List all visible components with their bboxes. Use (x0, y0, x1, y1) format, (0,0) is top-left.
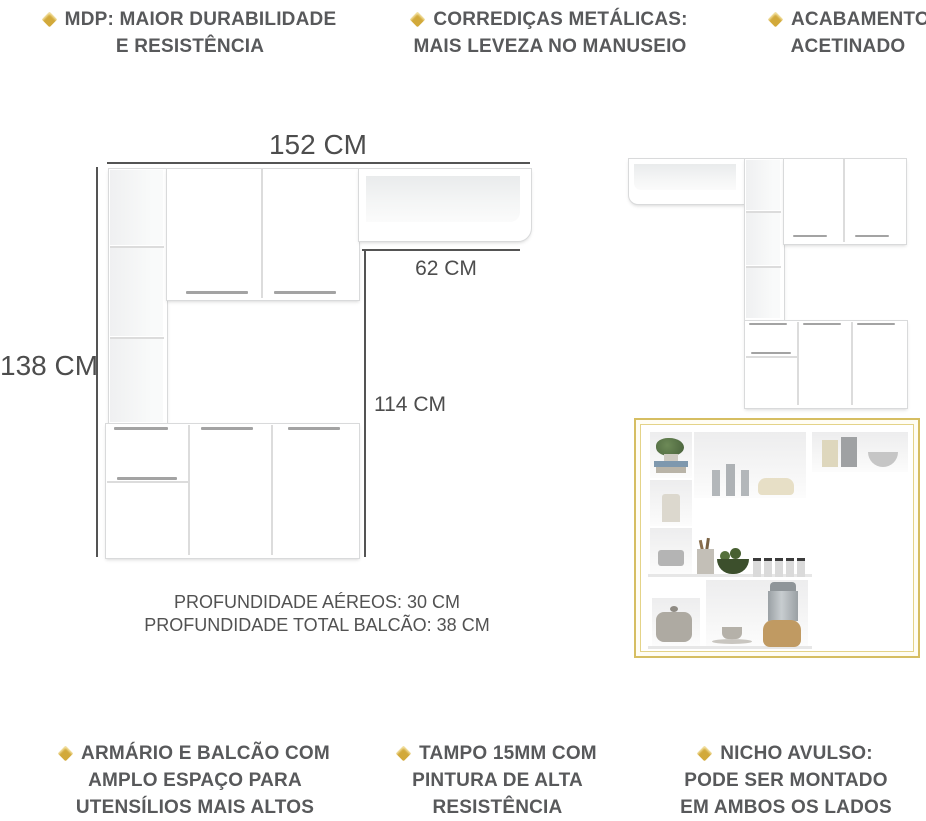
spice-jar-icon (797, 558, 805, 577)
canister-icon (841, 437, 857, 467)
shelf-column-niche (746, 213, 780, 265)
product-infographic: MDP: MAIOR DURABILIDADE E RESISTÊNCIA CO… (0, 0, 926, 821)
feature-nicho-line2: PODE SER MONTADO (655, 767, 917, 794)
feature-armario-line1: ARMÁRIO E BALCÃO COM (81, 743, 330, 764)
cup-icon (722, 627, 742, 639)
dim-label-counter-height: 114 CM (374, 393, 446, 417)
feature-tampo-line1: TAMPO 15MM COM (419, 743, 597, 764)
depth-note-balcao: PROFUNDIDADE TOTAL BALCÃO: 38 CM (117, 614, 517, 637)
fruit-icon (730, 548, 741, 559)
diamond-bullet-icon (58, 746, 74, 762)
feature-tampo-line2: PINTURA DE ALTA (370, 767, 625, 794)
utensil-cup-icon (697, 549, 714, 574)
teapot-icon (656, 612, 692, 642)
door-handle (114, 427, 168, 430)
dim-line-shelf-width (362, 249, 520, 251)
feature-tampo: TAMPO 15MM COM PINTURA DE ALTA RESISTÊNC… (370, 740, 625, 821)
shelf-column-niche (746, 160, 780, 210)
feature-armario: ARMÁRIO E BALCÃO COM AMPLO ESPAÇO PARA U… (15, 740, 375, 821)
base-cabinet (105, 423, 360, 559)
drawer-handle (751, 352, 791, 354)
feature-corredicas-line2: MAIS LEVEZA NO MANUSEIO (385, 33, 715, 60)
round-box-icon (758, 478, 794, 495)
wall-shelf-opening (366, 176, 520, 222)
spice-jar-icon (764, 558, 772, 577)
feature-nicho-line3: EM AMBOS OS LADOS (655, 794, 917, 821)
dim-line-counter-height (364, 249, 366, 557)
door-divider (851, 322, 853, 405)
base-cabinet (744, 320, 908, 409)
feature-acabamento-line1: ACABAMENTO (791, 9, 926, 30)
diamond-bullet-icon (396, 746, 412, 762)
diamond-bullet-icon (410, 12, 426, 28)
feature-corredicas: CORREDIÇAS METÁLICAS: MAIS LEVEZA NO MAN… (385, 6, 715, 60)
silver-candle-icon (712, 470, 720, 496)
door-handle (201, 427, 253, 430)
feature-corredicas-line1: CORREDIÇAS METÁLICAS: (433, 9, 687, 30)
diamond-bullet-icon (768, 12, 784, 28)
blender-jar-icon (768, 591, 798, 621)
spice-jar-icon (753, 558, 761, 577)
drawer-divider (107, 481, 188, 483)
dim-label-shelf-width: 62 CM (386, 257, 506, 281)
diamond-bullet-icon (41, 12, 57, 28)
door-divider (188, 425, 190, 555)
feature-armario-line3: UTENSÍLIOS MAIS ALTOS (15, 794, 375, 821)
door-handle (274, 291, 336, 294)
door-handle (803, 323, 841, 325)
silver-candle-icon (726, 464, 735, 496)
dim-label-total-height: 138 CM (0, 350, 92, 382)
drawer-handle (117, 477, 177, 480)
silver-candle-icon (741, 470, 749, 496)
shelf-divider (746, 211, 781, 213)
door-divider (261, 169, 263, 298)
shelf-divider (746, 266, 781, 268)
door-handle (288, 427, 340, 430)
teapot-lid-icon (670, 606, 678, 612)
feature-mdp: MDP: MAIOR DURABILIDADE E RESISTÊNCIA (10, 6, 370, 60)
feature-nicho: NICHO AVULSO: PODE SER MONTADO EM AMBOS … (655, 740, 917, 821)
shelf-column-niche (110, 170, 163, 245)
feature-tampo-line3: RESISTÊNCIA (370, 794, 625, 821)
shelf-divider (110, 337, 164, 339)
shelf-divider (110, 246, 164, 248)
spice-jar-icon (786, 558, 794, 577)
door-handle (855, 235, 889, 237)
shelf-column-niche (110, 248, 163, 336)
upper-cabinet (166, 168, 360, 301)
feature-armario-line2: AMPLO ESPAÇO PARA (15, 767, 375, 794)
feature-mdp-line1: MDP: MAIOR DURABILIDADE (65, 9, 337, 30)
door-handle (186, 291, 248, 294)
upper-cabinet (783, 158, 907, 245)
feature-acabamento-line2: ACETINADO (770, 33, 926, 60)
plant-pot-icon (664, 454, 678, 461)
door-divider (271, 425, 273, 555)
spice-jar-icon (775, 558, 783, 577)
saucer-icon (712, 639, 752, 644)
dim-line-total-width (107, 162, 530, 164)
candle-icon (662, 494, 680, 522)
depth-note-aereos: PROFUNDIDADE AÉREOS: 30 CM (117, 591, 517, 614)
drawer-divider (746, 356, 797, 358)
shelf-column-niche (746, 268, 780, 318)
diamond-bullet-icon (697, 746, 713, 762)
shelf-column-niche (110, 339, 163, 422)
trivet-icon (658, 550, 684, 566)
dim-label-total-width: 152 CM (218, 129, 418, 161)
door-handle (749, 323, 787, 325)
feature-acabamento: ACABAMENTO ACETINADO (770, 6, 926, 60)
door-divider (797, 322, 799, 405)
canister-icon (822, 440, 838, 467)
feature-mdp-line2: E RESISTÊNCIA (10, 33, 370, 60)
wall-shelf-opening (634, 164, 736, 190)
blender-base-icon (763, 620, 801, 647)
door-handle (793, 235, 827, 237)
feature-nicho-line1: NICHO AVULSO: (720, 743, 873, 764)
door-divider (843, 159, 845, 242)
door-handle (857, 323, 895, 325)
book-icon (656, 467, 686, 473)
